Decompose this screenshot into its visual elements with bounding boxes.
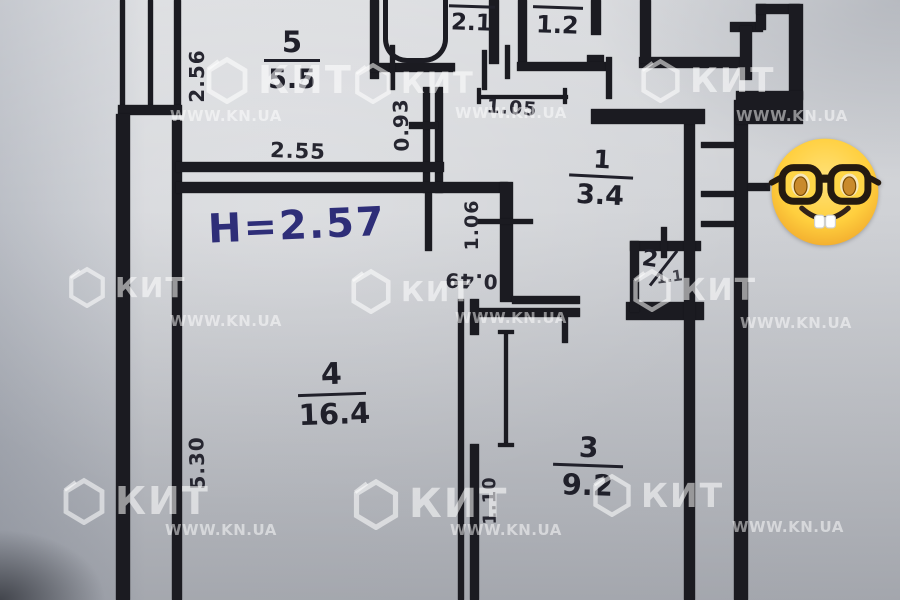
kit-hexagon-icon	[590, 473, 634, 517]
bathtub-icon	[383, 0, 448, 63]
wall	[409, 122, 438, 129]
wall	[701, 221, 735, 227]
watermark-site-url: WWW.KN.UA	[450, 521, 562, 539]
watermark-logo: КИТ	[203, 56, 353, 104]
wall	[116, 114, 130, 600]
watermark-brand: КИТ	[681, 273, 757, 308]
wall	[425, 193, 432, 251]
wall	[458, 299, 464, 600]
wall	[176, 162, 444, 172]
kit-hexagon-icon	[350, 478, 402, 530]
room-area: 1.2	[532, 8, 583, 39]
watermark-brand: КИТ	[401, 275, 472, 308]
wall	[640, 0, 651, 63]
watermark-site-url: WWW.KN.UA	[740, 314, 852, 332]
room-area: 16.4	[298, 394, 367, 431]
watermark-site-url: WWW.KN.UA	[170, 107, 282, 125]
watermark-site-url: WWW.KN.UA	[165, 521, 277, 539]
kit-hexagon-icon	[352, 62, 394, 104]
wall	[591, 0, 601, 35]
room-area: 2.1	[448, 7, 495, 37]
watermark-logo: КИТ	[352, 62, 475, 104]
nerd-face-emoji	[767, 134, 883, 250]
watermark-brand: КИТ	[258, 58, 353, 102]
watermark-logo: КИТ	[66, 266, 186, 308]
watermark-brand: КИТ	[641, 476, 724, 515]
wall	[174, 0, 181, 108]
room-label-room4: 4 16.4	[297, 357, 367, 432]
kit-hexagon-icon	[348, 268, 394, 314]
watermark-brand: КИТ	[115, 479, 210, 523]
watermark-brand: КИТ	[401, 66, 475, 100]
watermark-logo: КИТ	[60, 477, 210, 525]
wall	[512, 296, 580, 304]
dim-hall-doorway: 1.06	[461, 193, 483, 257]
floor-plan-photo: 5 5.5 2.1 7 1.2 1 3.4 4 16.4 3 9.2 2 1.1…	[0, 0, 900, 600]
watermark-logo: КИТ	[590, 473, 724, 517]
wall	[563, 88, 567, 104]
ceiling-height-note: H=2.57	[207, 197, 419, 252]
watermark-site-url: WWW.KN.UA	[736, 107, 848, 125]
room-number: 4	[297, 357, 366, 397]
wall	[518, 0, 527, 66]
watermark-logo: КИТ	[348, 268, 472, 314]
wall	[482, 50, 487, 90]
wall	[148, 0, 153, 110]
wall	[505, 45, 510, 79]
room-area: 3.4	[567, 176, 633, 212]
wall	[606, 57, 612, 99]
watermark-logo: КИТ	[630, 268, 757, 312]
wall	[684, 121, 695, 600]
wall	[701, 191, 735, 197]
kit-hexagon-icon	[203, 56, 251, 104]
wall	[476, 219, 533, 224]
wall	[789, 4, 803, 100]
kit-hexagon-icon	[638, 58, 683, 103]
watermark-site-url: WWW.KN.UA	[455, 104, 567, 122]
wall	[120, 0, 125, 110]
watermark-site-url: WWW.KN.UA	[455, 309, 567, 327]
watermark-site-url: WWW.KN.UA	[732, 518, 844, 536]
watermark-brand: КИТ	[690, 61, 775, 101]
wall	[498, 330, 514, 334]
watermark-logo: КИТ	[638, 58, 775, 103]
wall	[176, 182, 508, 193]
dim-kitchen-bottom-wall: 2.55	[262, 138, 335, 164]
room-label-toilet: 7 1.2	[532, 0, 584, 39]
wall	[661, 227, 667, 258]
watermark-site-url: WWW.KN.UA	[170, 312, 282, 330]
room-label-hall: 1 3.4	[567, 144, 634, 212]
room-number: 1	[569, 144, 635, 179]
room-number: 3	[553, 431, 624, 469]
nerd-face-icon	[767, 134, 883, 250]
wall	[701, 142, 735, 148]
wall	[504, 332, 508, 446]
kit-hexagon-icon	[60, 477, 108, 525]
wall	[517, 62, 607, 71]
wall	[498, 443, 514, 447]
kit-hexagon-icon	[630, 268, 674, 312]
kit-hexagon-icon	[66, 266, 108, 308]
watermark-brand: КИТ	[115, 271, 186, 304]
room-label-bathroom: 2.1	[448, 0, 496, 37]
wall	[591, 109, 705, 124]
